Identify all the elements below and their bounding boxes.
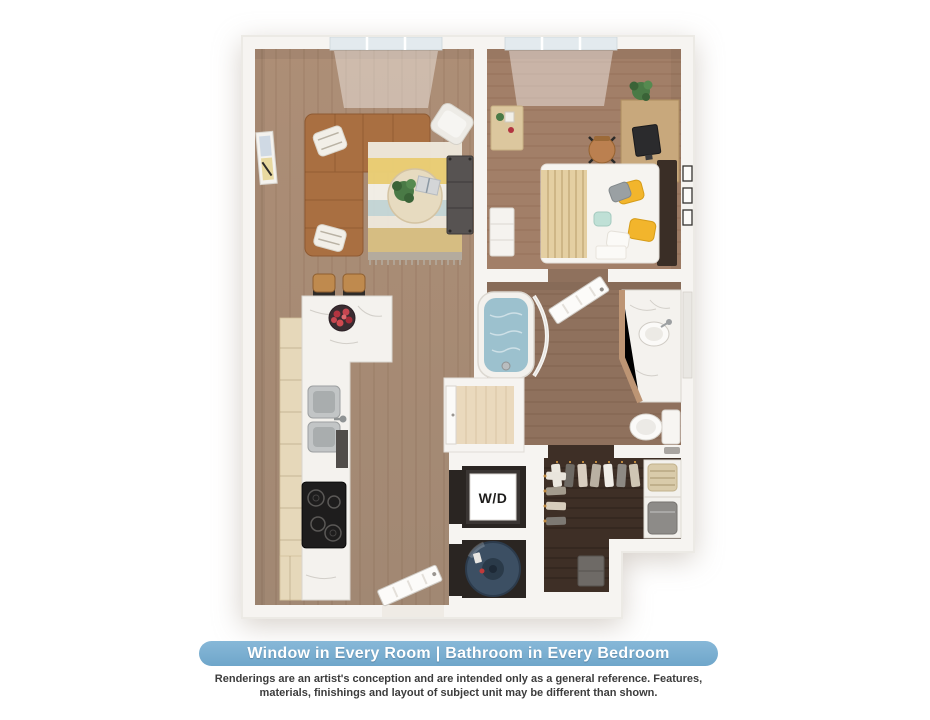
washer-dryer-unit: W/D	[466, 470, 520, 524]
bar-stool	[343, 274, 365, 296]
pillow-teal	[594, 212, 611, 226]
water-heater	[466, 542, 520, 596]
bed	[541, 160, 677, 266]
coffee-table	[388, 169, 442, 223]
gallery-frames	[683, 166, 692, 225]
disclaimer-line1: Renderings are an artist's conception an…	[199, 673, 718, 687]
disclaimer-line2: materials, finishings and layout of subj…	[199, 687, 718, 701]
linen-closet	[444, 378, 524, 452]
bedside-console	[491, 106, 523, 150]
closet-dresser	[578, 556, 604, 586]
bar-stool	[313, 274, 335, 296]
banner: Window in Every Room | Bathroom in Every…	[199, 641, 718, 666]
dresser	[490, 208, 514, 256]
pillow-yellow	[627, 218, 656, 242]
living-room-window	[330, 37, 442, 108]
office-chair	[589, 136, 615, 163]
dishwasher	[336, 430, 348, 468]
vanity	[622, 290, 692, 402]
basket-woven	[648, 464, 677, 491]
towel-bar	[664, 447, 680, 454]
washer-dryer-label: W/D	[479, 490, 508, 506]
media-console	[447, 156, 473, 234]
bathtub	[478, 292, 534, 378]
banner-text: Window in Every Room | Bathroom in Every…	[247, 645, 669, 663]
disclaimer: Renderings are an artist's conception an…	[199, 673, 718, 700]
bedroom-window	[505, 37, 617, 106]
cooktop	[302, 482, 346, 548]
page-root: { "banner": { "text": "Window in Every R…	[0, 0, 930, 720]
fruit-bowl	[329, 305, 355, 331]
floorplan: W/D	[0, 0, 930, 640]
bin-gray	[648, 502, 677, 534]
closet-shelving	[644, 460, 681, 538]
